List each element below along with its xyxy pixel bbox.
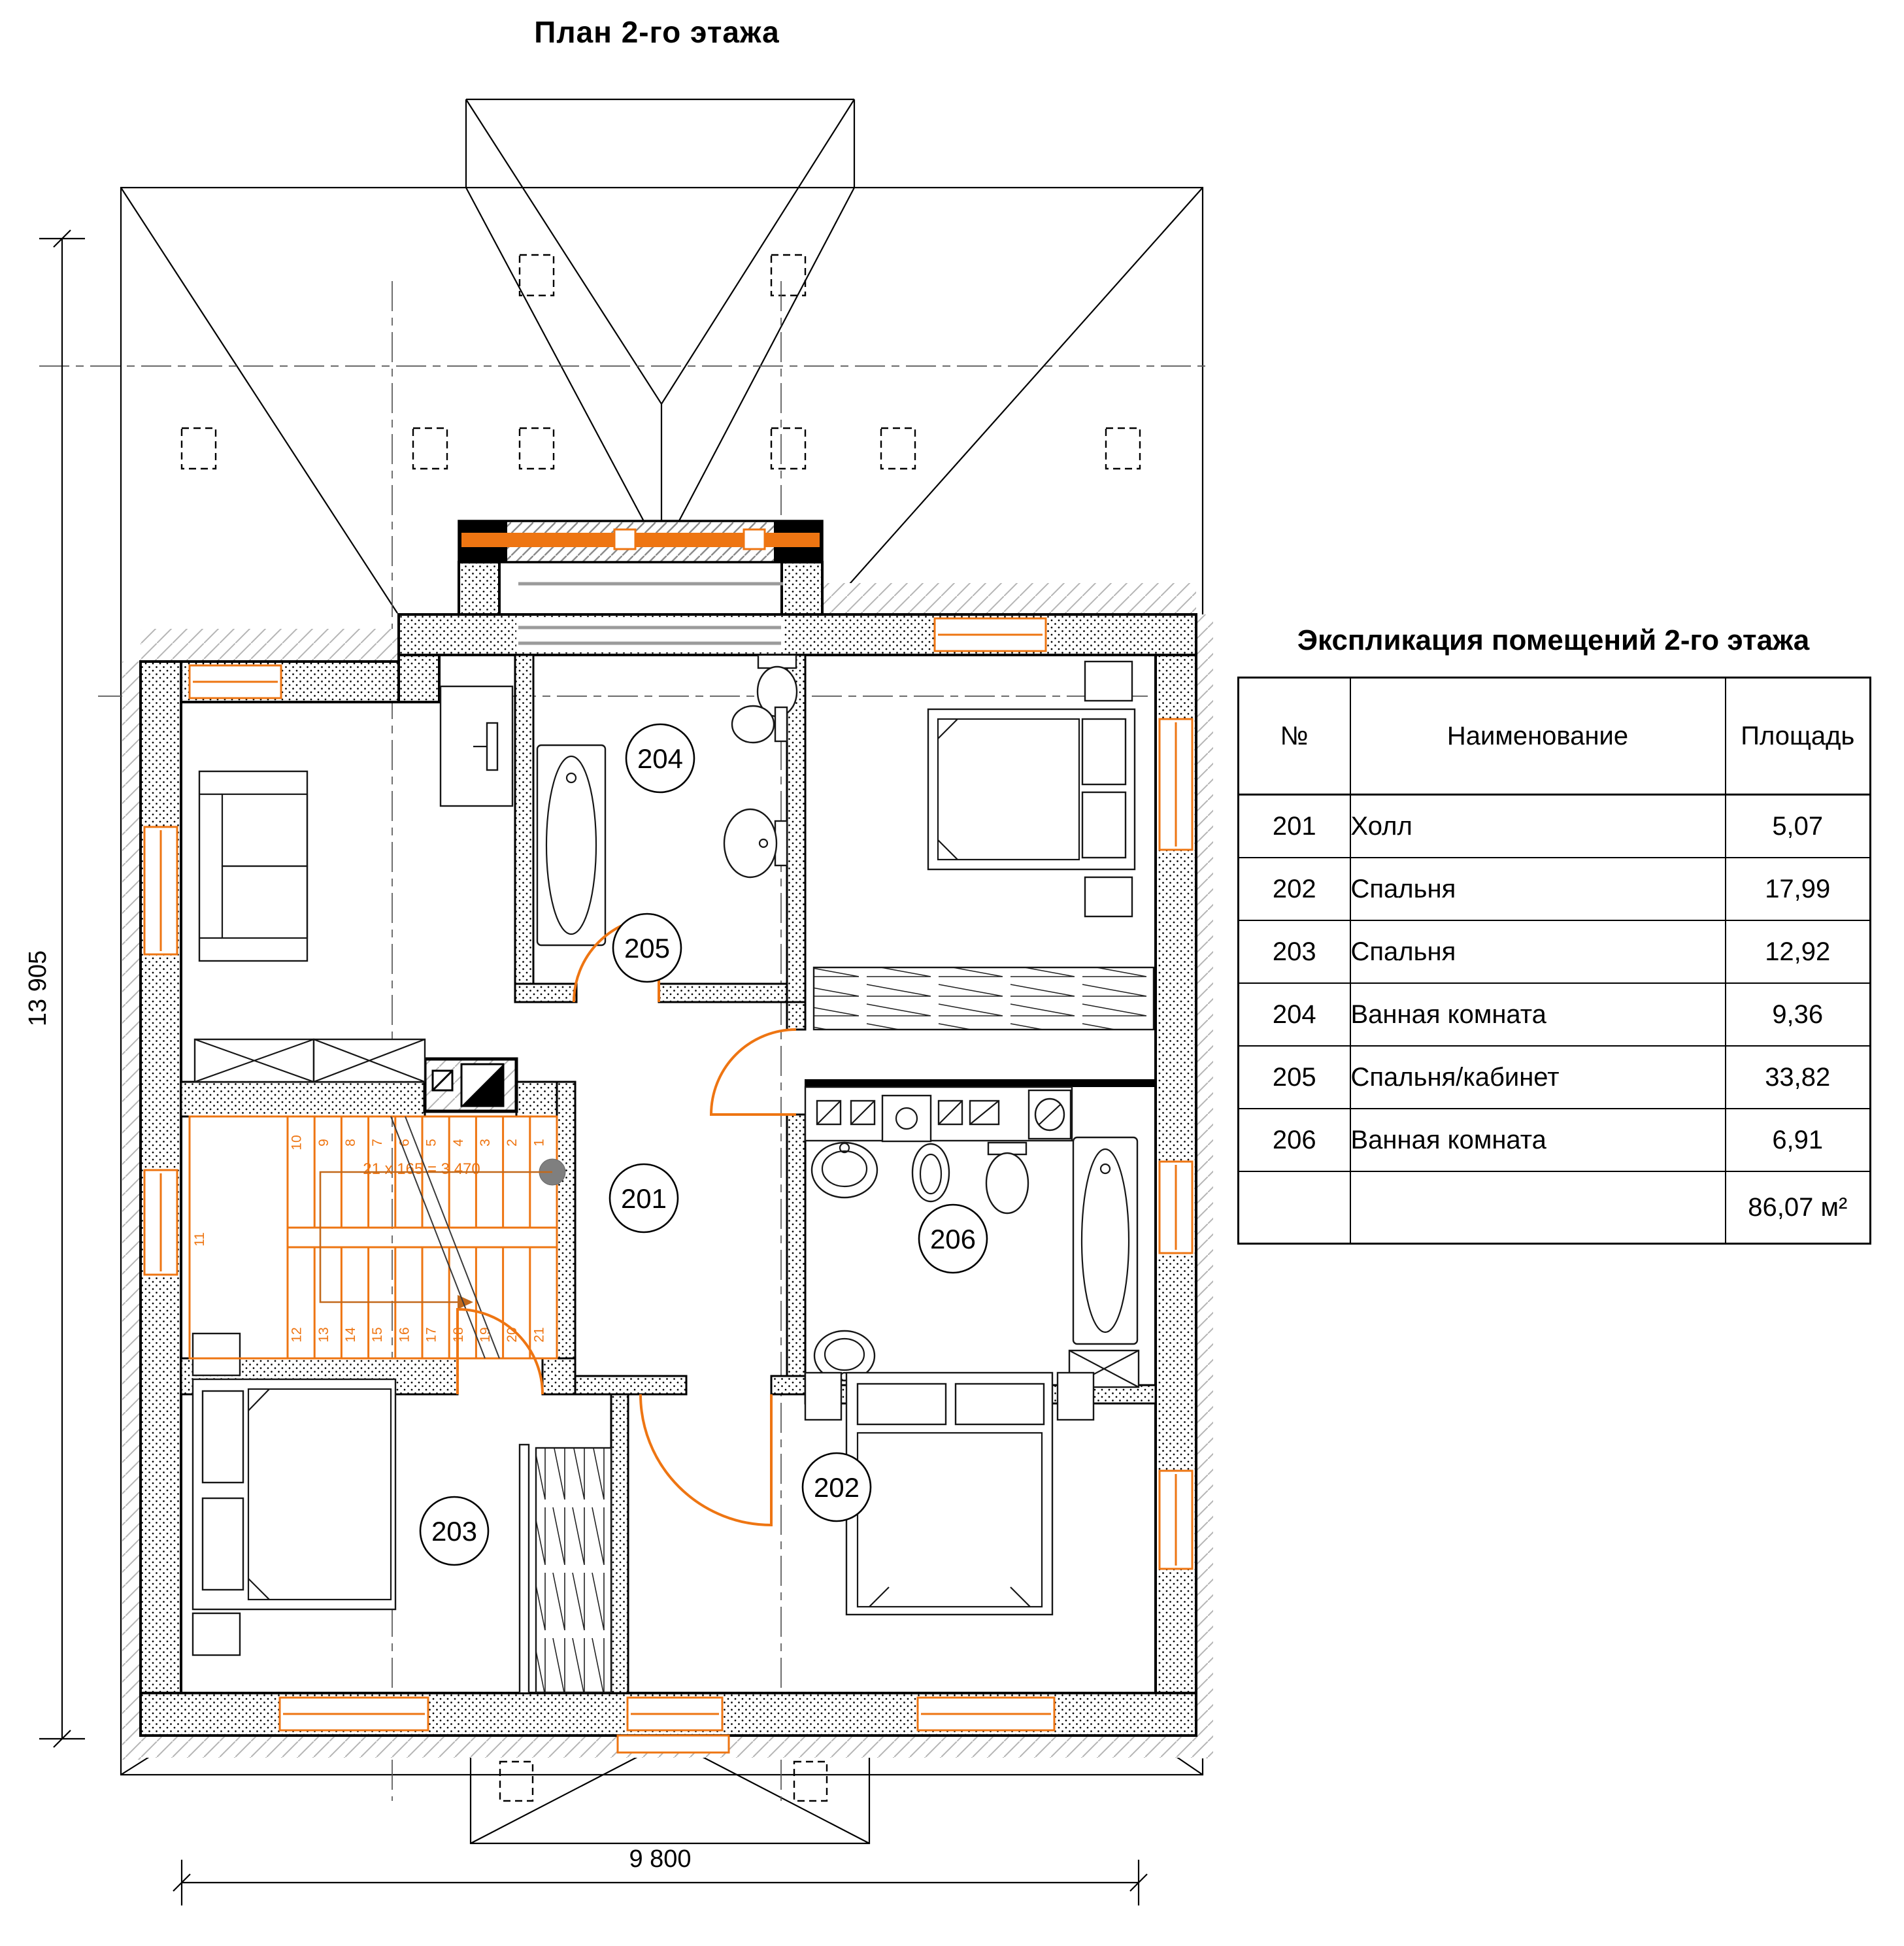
stair-tread-number: 11 — [192, 1232, 207, 1247]
room-number-cell: 205 — [1239, 1046, 1350, 1109]
balcony-window — [516, 584, 783, 652]
balcony-door — [618, 1698, 729, 1753]
stair-tread-number: 9 — [316, 1139, 331, 1147]
room-number-text: 202 — [814, 1472, 860, 1503]
desk — [441, 686, 512, 806]
schedule-row: 202Спальня17,99 — [1239, 858, 1871, 920]
stair-tread-number: 14 — [343, 1327, 358, 1343]
room-name-cell: Ванная комната — [1350, 1109, 1726, 1171]
stair-tread-number: 12 — [290, 1327, 305, 1342]
bath-counter-206 — [805, 1087, 1072, 1141]
sofa — [199, 771, 307, 961]
stair-tread-number: 16 — [397, 1327, 412, 1342]
room-name-cell: Холл — [1350, 795, 1726, 858]
room-area-cell: 5,07 — [1726, 795, 1871, 858]
stair-tread-number: 10 — [290, 1135, 305, 1150]
bed-upper — [928, 662, 1135, 916]
schedule-row: 206Ванная комната6,91 — [1239, 1109, 1871, 1171]
room-number-text: 206 — [930, 1224, 976, 1254]
room-number-text: 203 — [431, 1516, 477, 1547]
stair-tread-number: 1 — [531, 1139, 546, 1147]
window — [144, 827, 177, 954]
stair-tread-number: 21 — [531, 1327, 546, 1342]
room-schedule: Экспликация помещений 2-го этажа № Наиме… — [1237, 624, 1869, 1245]
room-label-202: 202 — [803, 1453, 871, 1521]
room-number-text: 205 — [624, 933, 670, 964]
room-label-205: 205 — [613, 914, 681, 982]
room-area-cell: 6,91 — [1726, 1109, 1871, 1171]
stair-tread-number: 17 — [424, 1327, 439, 1342]
room-number-cell: 201 — [1239, 795, 1350, 858]
room-area-cell: 33,82 — [1726, 1046, 1871, 1109]
stair-tread-number: 2 — [505, 1139, 520, 1147]
schedule-row: 205Спальня/кабинет33,82 — [1239, 1046, 1871, 1109]
total-empty-name — [1350, 1171, 1726, 1244]
room-number-cell: 204 — [1239, 983, 1350, 1046]
window — [144, 1170, 177, 1275]
room-name-cell: Спальня — [1350, 920, 1726, 983]
window — [1160, 1471, 1192, 1569]
room-label-204: 204 — [626, 724, 694, 792]
dimension-left: 13 905 — [24, 230, 85, 1747]
room-area-cell: 9,36 — [1726, 983, 1871, 1046]
room-name-cell: Спальня — [1350, 858, 1726, 920]
room-number-text: 201 — [621, 1183, 667, 1214]
schedule-header-row: № Наименование Площадь — [1239, 678, 1871, 795]
stair-tread-number: 15 — [370, 1327, 385, 1342]
stair-tread-number: 13 — [316, 1327, 331, 1342]
wardrobe-door-panel — [520, 1445, 529, 1693]
wardrobe-x — [195, 1039, 425, 1082]
schedule-row: 203Спальня12,92 — [1239, 920, 1871, 983]
dimension-bottom: 9 800 — [173, 1845, 1147, 1905]
room-label-201: 201 — [610, 1164, 678, 1232]
bed-203 — [193, 1334, 395, 1655]
toilet-206 — [986, 1143, 1028, 1213]
stair-tread-number: 8 — [343, 1139, 358, 1147]
window — [1160, 719, 1192, 850]
bathtub-204 — [537, 745, 605, 945]
room-number-cell: 206 — [1239, 1109, 1350, 1171]
room-area-cell: 17,99 — [1726, 858, 1871, 920]
stair-tread-number: 5 — [424, 1139, 439, 1147]
total-empty-number — [1239, 1171, 1350, 1244]
dimension-width-label: 9 800 — [629, 1845, 691, 1873]
stair-formula: 21 x 165 = 3 470 — [363, 1160, 480, 1178]
bidet-204 — [732, 706, 787, 743]
door-202 — [641, 1394, 771, 1525]
room-name-cell: Ванная комната — [1350, 983, 1726, 1046]
col-header-number: № — [1239, 678, 1350, 795]
stairs: 123456789101213141516171819202111 21 x 1… — [190, 1116, 565, 1358]
wardrobe-hangers-2 — [536, 1448, 611, 1692]
schedule-row: 204Ванная комната9,36 — [1239, 983, 1871, 1046]
vent-shaft — [425, 1059, 516, 1111]
window — [280, 1698, 428, 1730]
room-name-cell: Спальня/кабинет — [1350, 1046, 1726, 1109]
schedule-table: № Наименование Площадь 201Холл5,07202Спа… — [1237, 677, 1871, 1245]
schedule-total-row: 86,07 м² — [1239, 1171, 1871, 1244]
window — [935, 618, 1046, 651]
sink-206-a — [812, 1143, 877, 1198]
room-number-text: 204 — [637, 743, 683, 774]
window — [1160, 1162, 1192, 1253]
window — [190, 665, 281, 698]
schedule-row: 201Холл5,07 — [1239, 795, 1871, 858]
stair-tread-number: 7 — [370, 1139, 385, 1147]
stair-tread-number: 6 — [397, 1139, 412, 1147]
room-number-cell: 202 — [1239, 858, 1350, 920]
stair-tread-number: 3 — [478, 1139, 493, 1147]
bathtub-206 — [1073, 1137, 1137, 1344]
furniture — [193, 655, 1154, 1693]
bidet-206 — [912, 1144, 949, 1201]
schedule-title: Экспликация помещений 2-го этажа — [1237, 624, 1869, 657]
room-label-206: 206 — [919, 1205, 987, 1273]
room-area-cell: 12,92 — [1726, 920, 1871, 983]
window — [918, 1698, 1054, 1730]
stair-tread-number: 4 — [451, 1139, 466, 1147]
room-label-203: 203 — [420, 1497, 488, 1565]
wardrobe-hangers — [814, 967, 1154, 1030]
total-area-value: 86,07 м² — [1726, 1171, 1871, 1244]
room-number-cell: 203 — [1239, 920, 1350, 983]
sink-204 — [724, 809, 787, 877]
col-header-name: Наименование — [1350, 678, 1726, 795]
door-206 — [711, 1030, 796, 1115]
dimension-height-label: 13 905 — [24, 950, 52, 1026]
col-header-area: Площадь — [1726, 678, 1871, 795]
